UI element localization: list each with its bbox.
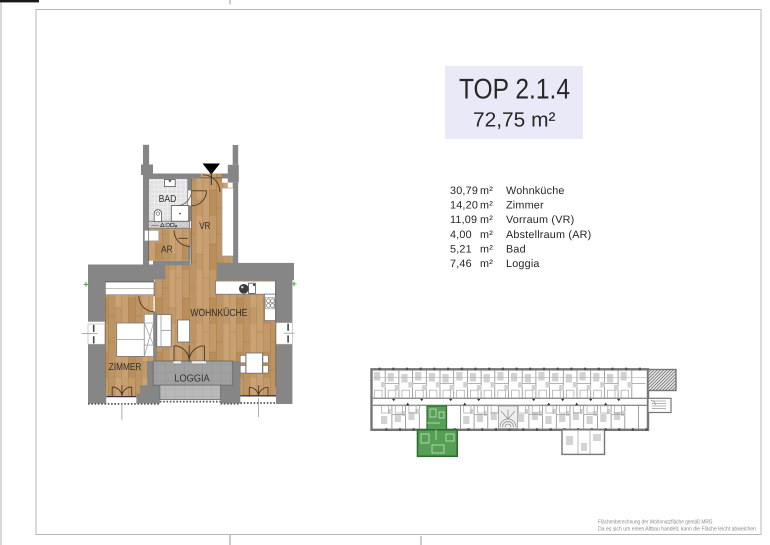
svg-text:30,79: 30,79: [450, 185, 478, 197]
svg-text:m²: m²: [480, 185, 493, 197]
svg-text:m²: m²: [480, 200, 493, 212]
svg-text:14,20: 14,20: [450, 200, 478, 212]
svg-text:Wohnküche: Wohnküche: [506, 185, 565, 197]
svg-text:4,00: 4,00: [450, 229, 472, 241]
svg-text:ZIMMER: ZIMMER: [109, 362, 142, 373]
svg-text:Bad: Bad: [506, 243, 526, 255]
svg-text:AR: AR: [161, 245, 173, 256]
svg-text:m²: m²: [480, 229, 493, 241]
svg-text:BAD: BAD: [159, 194, 177, 205]
svg-text:Zimmer: Zimmer: [506, 200, 544, 212]
svg-text:5,21: 5,21: [450, 243, 472, 255]
svg-text:Abstellraum (AR): Abstellraum (AR): [506, 229, 591, 241]
svg-text:VR: VR: [199, 221, 210, 232]
svg-text:11,09: 11,09: [450, 214, 477, 226]
svg-text:m²: m²: [480, 243, 493, 255]
svg-text:72,75 m²: 72,75 m²: [473, 109, 556, 132]
svg-text:m²: m²: [480, 258, 493, 270]
svg-text:m²: m²: [480, 214, 493, 226]
svg-text:Flächenberechnung der Wohnnutz: Flächenberechnung der Wohnnutzfläche gem…: [598, 519, 713, 526]
svg-text:WOHNKÜCHE: WOHNKÜCHE: [190, 307, 247, 319]
svg-text:Da es sich um einen Altbau han: Da es sich um einen Altbau handelt, kann…: [598, 526, 756, 533]
svg-text:Loggia: Loggia: [506, 258, 540, 270]
svg-text:LOGGIA: LOGGIA: [174, 373, 209, 384]
svg-text:7,46: 7,46: [450, 258, 472, 270]
svg-text:Vorraum (VR): Vorraum (VR): [506, 214, 574, 226]
svg-text:TOP 2.1.4: TOP 2.1.4: [459, 74, 570, 106]
